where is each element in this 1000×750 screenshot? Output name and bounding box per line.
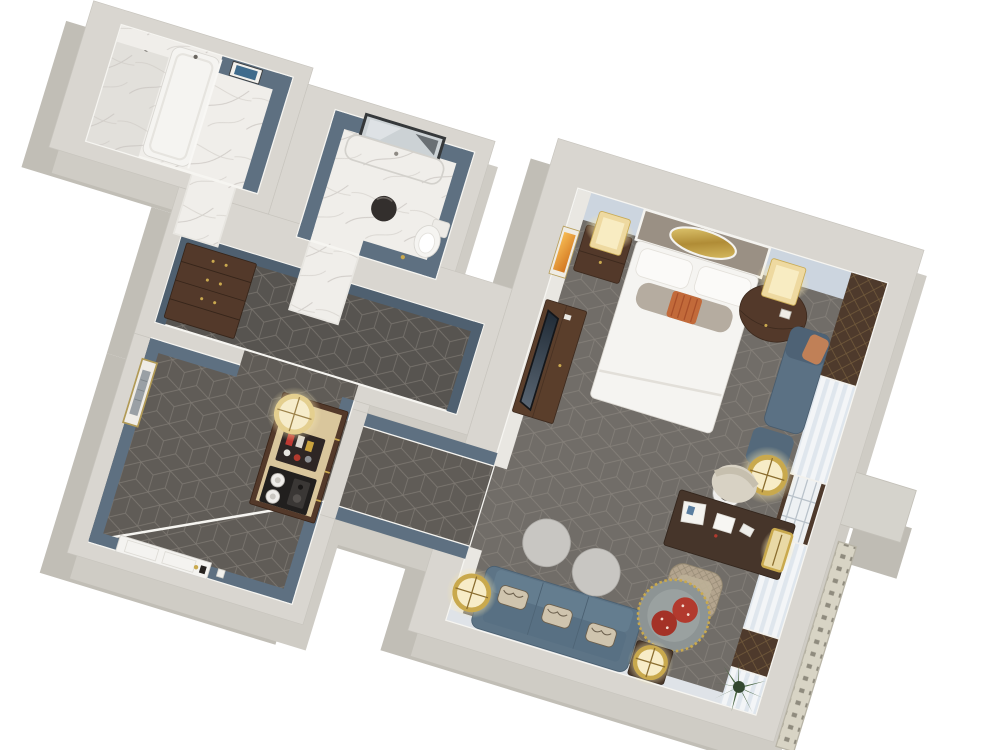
render-canvas [0, 0, 1000, 750]
floorplan-svg [0, 0, 1000, 750]
